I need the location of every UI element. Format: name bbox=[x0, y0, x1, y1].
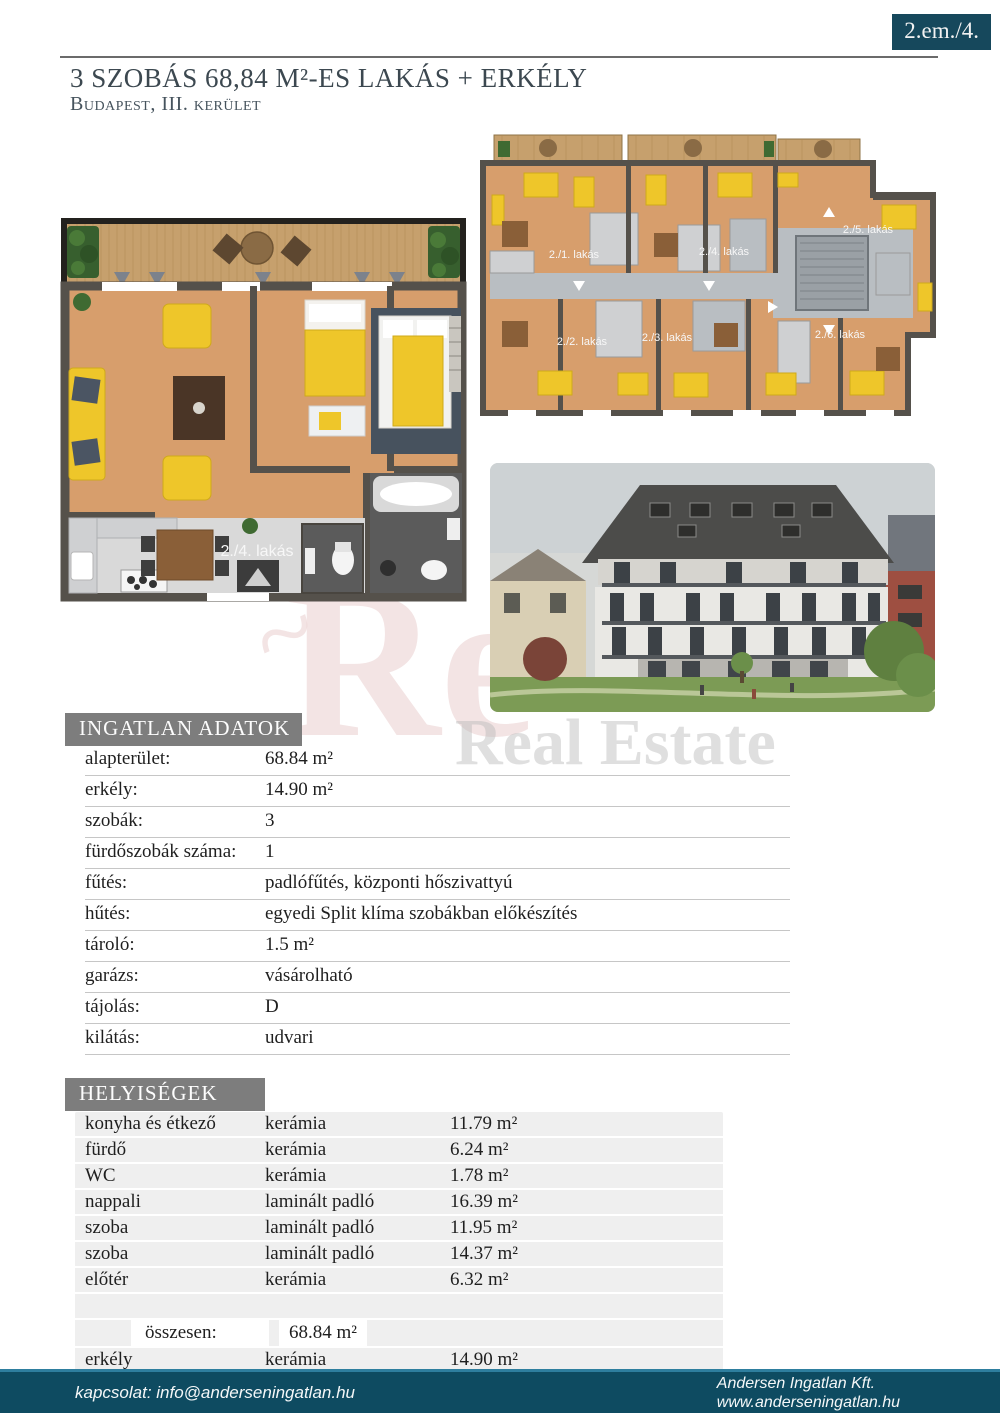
property-label: fürdőszobák száma: bbox=[85, 838, 265, 866]
floor-unit-badge: 2.em./4. bbox=[892, 14, 991, 50]
property-value: 3 bbox=[265, 810, 275, 831]
bedroom-right bbox=[371, 308, 461, 454]
property-row: tároló:1.5 m² bbox=[85, 931, 790, 962]
property-label: erkély: bbox=[85, 776, 265, 804]
property-label: tájolás: bbox=[85, 993, 265, 1021]
property-label: garázs: bbox=[85, 962, 265, 990]
apartment-floor-plan: 2./4. lakás bbox=[57, 218, 470, 603]
header-rule bbox=[60, 56, 938, 58]
unit-label-3: 2./3. lakás bbox=[642, 332, 693, 344]
room-name: szoba bbox=[75, 1216, 265, 1240]
property-value: 14.90 m² bbox=[265, 779, 333, 800]
terrace-plant-right bbox=[428, 226, 460, 278]
room-area: 14.37 m² bbox=[450, 1242, 723, 1266]
property-row: alapterület:68.84 m² bbox=[85, 745, 790, 776]
room-row: WCkerámia1.78 m² bbox=[75, 1164, 723, 1190]
property-value: 1 bbox=[265, 841, 275, 862]
property-row: szobák:3 bbox=[85, 807, 790, 838]
apartment-interior: 2./4. lakás bbox=[65, 282, 464, 601]
property-label: kilátás: bbox=[85, 1024, 265, 1052]
building-floor-plan: 2./1. lakás 2./4. lakás 2./5. lakás 2./2… bbox=[478, 133, 940, 420]
unit-label-5: 2./5. lakás bbox=[843, 224, 894, 236]
room-row: előtérkerámia6.32 m² bbox=[75, 1268, 723, 1294]
room-material: kerámia bbox=[265, 1268, 450, 1292]
room-area: 11.95 m² bbox=[450, 1216, 723, 1240]
page-title: 3 SZOBÁS 68,84 M²-ES LAKÁS + ERKÉLY bbox=[70, 63, 587, 94]
property-label: fűtés: bbox=[85, 869, 265, 897]
property-value: vásárolható bbox=[265, 965, 353, 986]
rooms-header: HELYISÉGEK bbox=[65, 1078, 265, 1111]
property-row: fűtés:padlófűtés, központi hőszivattyú bbox=[85, 869, 790, 900]
contact-email-link[interactable]: kapcsolat: info@anderseningatlan.hu bbox=[75, 1383, 355, 1403]
building-exterior-render bbox=[490, 463, 935, 712]
room-name: konyha és étkező bbox=[75, 1112, 265, 1136]
property-label: alapterület: bbox=[85, 745, 265, 773]
property-value: padlófűtés, központi hőszivattyú bbox=[265, 872, 512, 893]
datasheet-page: ~ Re Real Estate 2.em./4. 3 SZOBÁS 68,84… bbox=[0, 0, 1000, 1413]
room-name: szoba bbox=[75, 1242, 265, 1266]
room-area: 6.24 m² bbox=[450, 1138, 723, 1162]
main-building bbox=[582, 485, 894, 681]
footer-bar: kapcsolat: info@anderseningatlan.hu Ande… bbox=[0, 1369, 1000, 1413]
room-row: szobalaminált padló14.37 m² bbox=[75, 1242, 723, 1268]
room-material: laminált padló bbox=[265, 1216, 450, 1240]
rooms-total-label: összesen: bbox=[131, 1320, 269, 1346]
room-material: kerámia bbox=[265, 1112, 450, 1136]
property-row: fürdőszobák száma:1 bbox=[85, 838, 790, 869]
property-row: erkély:14.90 m² bbox=[85, 776, 790, 807]
room-row: konyha és étkezőkerámia11.79 m² bbox=[75, 1112, 723, 1138]
company-website-link[interactable]: www.anderseningatlan.hu bbox=[717, 1393, 900, 1412]
rooms-total-value: 68.84 m² bbox=[279, 1320, 367, 1346]
property-value: 68.84 m² bbox=[265, 748, 333, 769]
room-area: 11.79 m² bbox=[450, 1112, 723, 1136]
wc-room bbox=[302, 524, 363, 593]
room-name: fürdő bbox=[75, 1138, 265, 1162]
floor-body: 2./1. lakás 2./4. lakás 2./5. lakás 2./2… bbox=[483, 163, 933, 418]
property-label: szobák: bbox=[85, 807, 265, 835]
property-data-table: alapterület:68.84 m² erkély:14.90 m² szo… bbox=[85, 745, 790, 1055]
page-subtitle: Budapest, III. kerület bbox=[70, 93, 261, 116]
unit-label-1: 2./1. lakás bbox=[549, 249, 600, 261]
property-row: tájolás:D bbox=[85, 993, 790, 1024]
property-row: garázs:vásárolható bbox=[85, 962, 790, 993]
room-area: 16.39 m² bbox=[450, 1190, 723, 1214]
rooms-total-row: összesen:68.84 m² bbox=[75, 1320, 723, 1348]
property-value: egyedi Split klíma szobákban előkészítés bbox=[265, 903, 577, 924]
property-value: udvari bbox=[265, 1027, 314, 1048]
bathroom bbox=[370, 473, 462, 593]
unit-label-6: 2./6. lakás bbox=[815, 329, 866, 341]
company-name: Andersen Ingatlan Kft. bbox=[717, 1374, 900, 1393]
room-name: WC bbox=[75, 1164, 265, 1188]
terrace-plant-left bbox=[67, 226, 99, 278]
room-row: szobalaminált padló11.95 m² bbox=[75, 1216, 723, 1242]
property-label: hűtés: bbox=[85, 900, 265, 928]
property-data-header: INGATLAN ADATOK bbox=[65, 713, 302, 746]
unit-label-4: 2./4. lakás bbox=[699, 246, 750, 258]
apartment-label: 2./4. lakás bbox=[221, 543, 294, 560]
property-value: D bbox=[265, 996, 279, 1017]
room-area: 6.32 m² bbox=[450, 1268, 723, 1292]
room-material: kerámia bbox=[265, 1138, 450, 1162]
room-material: laminált padló bbox=[265, 1242, 450, 1266]
room-name: nappali bbox=[75, 1190, 265, 1214]
bedroom-middle bbox=[305, 300, 365, 436]
unit-label-2: 2./2. lakás bbox=[557, 336, 608, 348]
terrace bbox=[61, 218, 466, 286]
property-row: hűtés:egyedi Split klíma szobákban előké… bbox=[85, 900, 790, 931]
property-value: 1.5 m² bbox=[265, 934, 314, 955]
rooms-table: konyha és étkezőkerámia11.79 m² fürdőker… bbox=[75, 1112, 723, 1376]
rooms-spacer-row bbox=[75, 1294, 723, 1320]
property-label: tároló: bbox=[85, 931, 265, 959]
room-row: fürdőkerámia6.24 m² bbox=[75, 1138, 723, 1164]
room-name: előtér bbox=[75, 1268, 265, 1292]
room-row: nappalilaminált padló16.39 m² bbox=[75, 1190, 723, 1216]
room-area: 1.78 m² bbox=[450, 1164, 723, 1188]
footer-company-block: Andersen Ingatlan Kft. www.anderseningat… bbox=[717, 1374, 900, 1412]
floor-terraces bbox=[494, 135, 860, 163]
room-material: kerámia bbox=[265, 1164, 450, 1188]
property-row: kilátás:udvari bbox=[85, 1024, 790, 1055]
room-material: laminált padló bbox=[265, 1190, 450, 1214]
